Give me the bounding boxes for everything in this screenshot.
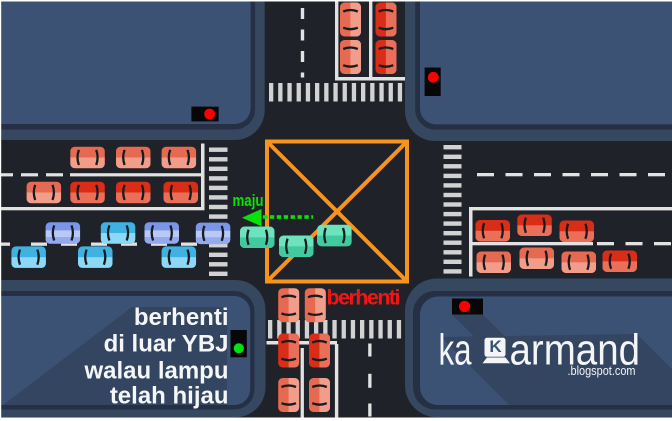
svg-text:walau lampu: walau lampu bbox=[83, 357, 228, 384]
svg-text:maju: maju bbox=[233, 192, 264, 210]
svg-text:berhenti: berhenti bbox=[327, 286, 401, 310]
svg-text:ka: ka bbox=[439, 326, 472, 375]
svg-text:K: K bbox=[489, 337, 502, 356]
svg-text:berhenti: berhenti bbox=[134, 304, 229, 331]
svg-text:di luar YBJ: di luar YBJ bbox=[104, 331, 229, 358]
svg-text:telah hijau: telah hijau bbox=[110, 383, 229, 410]
svg-text:.blogspot.com: .blogspot.com bbox=[568, 364, 636, 378]
